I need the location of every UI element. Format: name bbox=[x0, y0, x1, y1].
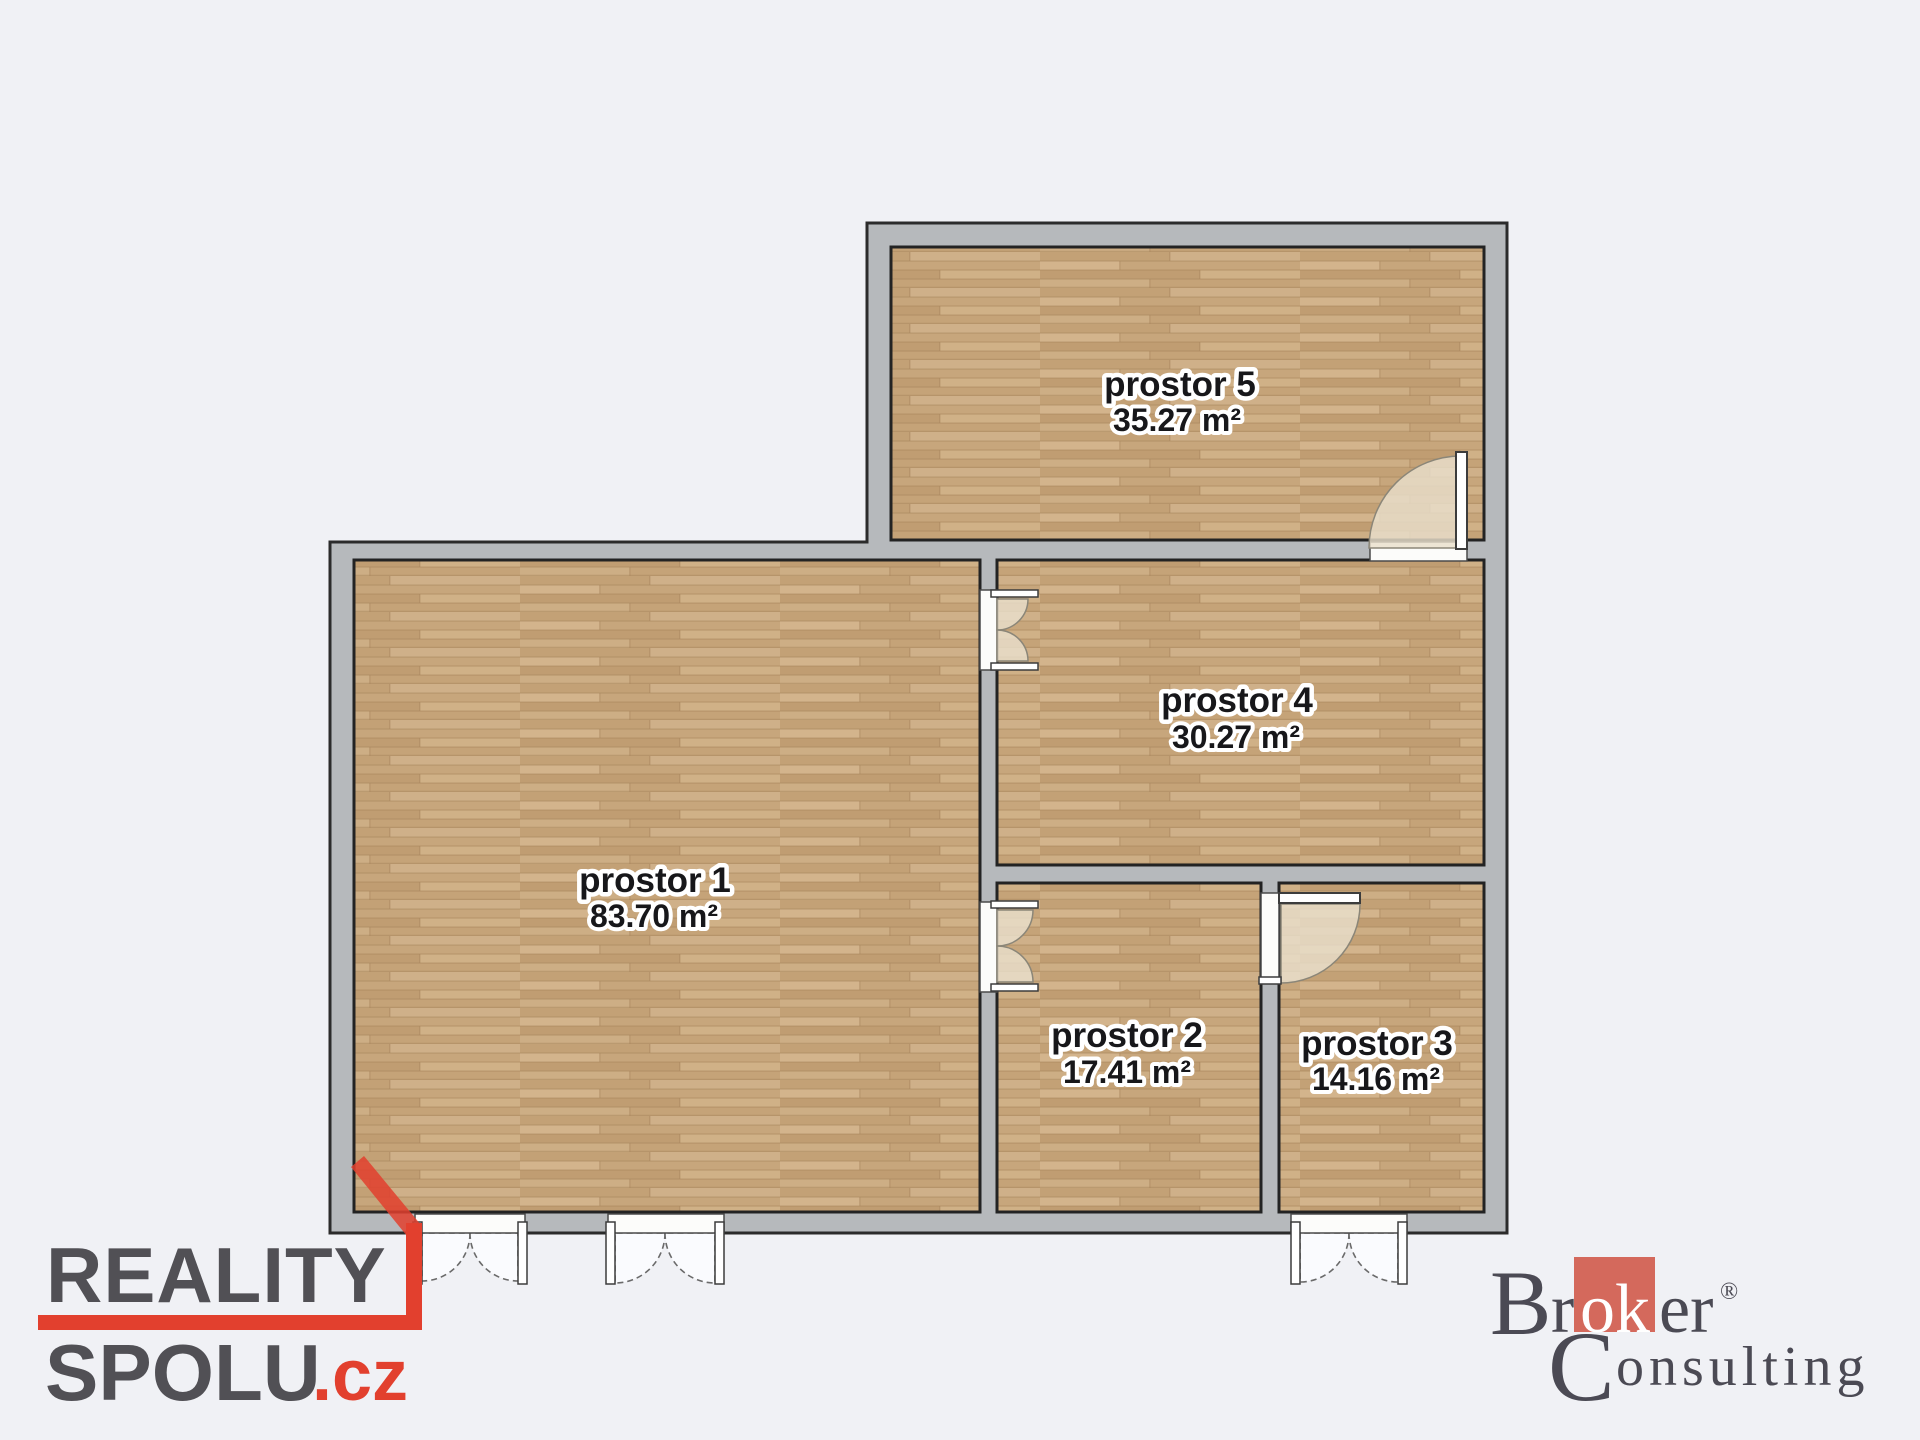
reality-spolu-word-spolu: SPOLU bbox=[45, 1328, 321, 1417]
broker-registered-mark: ® bbox=[1720, 1279, 1738, 1305]
room-label-prostor-4: prostor 4 bbox=[1161, 681, 1313, 720]
broker-b: B bbox=[1490, 1252, 1551, 1354]
room-area-prostor-2: 17.41 m² bbox=[1063, 1054, 1191, 1090]
exterior-door-b bbox=[606, 1214, 724, 1284]
room-label-prostor-3: prostor 3 bbox=[1301, 1024, 1453, 1063]
floor-plan: prostor 1 83.70 m² prostor 2 17.41 m² pr… bbox=[330, 223, 1507, 1284]
room-label-prostor-5: prostor 5 bbox=[1104, 365, 1256, 404]
reality-spolu-ribbon-vertical bbox=[406, 1223, 422, 1330]
consulting-c: C bbox=[1548, 1311, 1615, 1422]
room-label-prostor-2: prostor 2 bbox=[1051, 1016, 1203, 1055]
room-area-prostor-4: 30.27 m² bbox=[1172, 719, 1300, 755]
exterior-door-c bbox=[1291, 1214, 1407, 1284]
reality-spolu-word-reality: REALITY bbox=[46, 1231, 387, 1319]
exterior-door-a bbox=[413, 1214, 527, 1284]
logo-broker-consulting: B r ok er ® C onsulting bbox=[1490, 1252, 1869, 1422]
room-area-prostor-3: 14.16 m² bbox=[1312, 1061, 1440, 1097]
room-area-prostor-1: 83.70 m² bbox=[590, 898, 718, 934]
room-label-prostor-1: prostor 1 bbox=[579, 861, 731, 900]
room-area-prostor-5: 35.27 m² bbox=[1113, 402, 1241, 438]
reality-spolu-tld: .cz bbox=[312, 1336, 408, 1416]
consulting-rest: onsulting bbox=[1616, 1336, 1869, 1398]
floorplan-canvas: prostor 1 83.70 m² prostor 2 17.41 m² pr… bbox=[0, 0, 1920, 1440]
